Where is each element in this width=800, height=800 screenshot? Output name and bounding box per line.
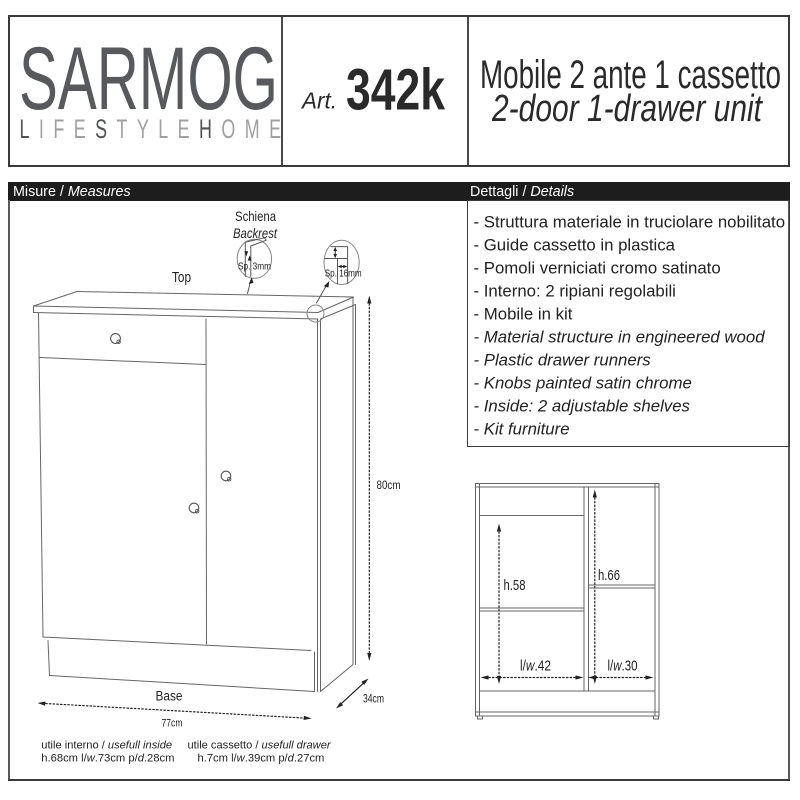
- svg-text:80cm: 80cm: [377, 478, 401, 492]
- svg-text:Backrest: Backrest: [233, 225, 278, 241]
- svg-text:h.7cm l/w.39cm p/d.27cm: h.7cm l/w.39cm p/d.27cm: [198, 753, 325, 765]
- svg-text:h.66: h.66: [598, 567, 620, 584]
- svg-text:l/w.30: l/w.30: [608, 658, 638, 675]
- svg-text:Top: Top: [172, 270, 191, 286]
- svg-text:Schiena: Schiena: [235, 208, 276, 224]
- svg-text:77cm: 77cm: [162, 718, 183, 730]
- svg-text:h.58: h.58: [504, 577, 526, 594]
- svg-text:utile interno / usefull inside: utile interno / usefull inside: [41, 740, 172, 752]
- svg-text:Sp. 3mm: Sp. 3mm: [238, 261, 271, 273]
- svg-text:utile cassetto / usefull drawe: utile cassetto / usefull drawer: [188, 740, 332, 752]
- svg-text:h.68cm l/w.73cm p/d.28cm: h.68cm l/w.73cm p/d.28cm: [41, 753, 174, 765]
- svg-text:34cm: 34cm: [363, 694, 384, 706]
- svg-text:l/w.42: l/w.42: [520, 658, 551, 675]
- svg-text:Sp. 16mm: Sp. 16mm: [325, 268, 362, 280]
- svg-text:Base: Base: [156, 689, 183, 704]
